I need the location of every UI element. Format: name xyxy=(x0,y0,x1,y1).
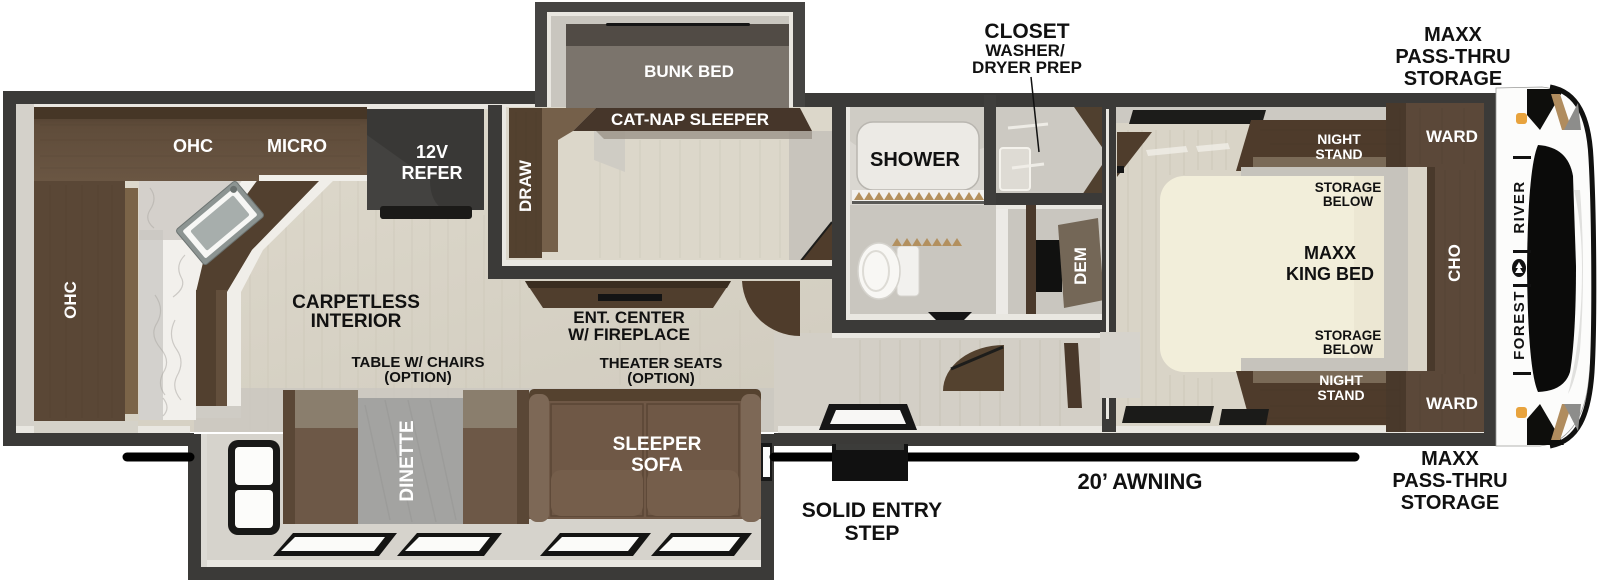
svg-text:DEM: DEM xyxy=(1071,247,1090,285)
svg-text:STORAGE: STORAGE xyxy=(1404,68,1503,90)
svg-text:MAXX: MAXX xyxy=(1424,24,1482,46)
svg-text:STORAGE: STORAGE xyxy=(1315,328,1382,343)
svg-text:WARD: WARD xyxy=(1426,127,1478,146)
svg-text:12V: 12V xyxy=(416,142,448,162)
svg-text:STAND: STAND xyxy=(1315,146,1362,162)
svg-text:PASS-THRU: PASS-THRU xyxy=(1392,470,1507,492)
svg-text:KING BED: KING BED xyxy=(1286,264,1374,284)
svg-text:STORAGE: STORAGE xyxy=(1401,492,1500,514)
svg-text:(OPTION): (OPTION) xyxy=(384,369,452,386)
svg-text:STORAGE: STORAGE xyxy=(1315,180,1382,195)
svg-text:INTERIOR: INTERIOR xyxy=(311,311,402,332)
svg-text:MICRO: MICRO xyxy=(267,136,327,156)
svg-text:NIGHT: NIGHT xyxy=(1319,372,1363,388)
svg-text:SOLID ENTRY: SOLID ENTRY xyxy=(802,499,942,522)
svg-text:20’ AWNING: 20’ AWNING xyxy=(1077,469,1202,494)
svg-text:W/ FIREPLACE: W/ FIREPLACE xyxy=(568,325,690,344)
svg-text:SOFA: SOFA xyxy=(631,455,683,476)
svg-text:CLOSET: CLOSET xyxy=(984,20,1069,43)
svg-text:OHC: OHC xyxy=(61,281,80,319)
svg-text:WARD: WARD xyxy=(1426,394,1478,413)
svg-text:MAXX: MAXX xyxy=(1304,243,1356,263)
svg-text:REFER: REFER xyxy=(401,163,462,183)
svg-text:STEP: STEP xyxy=(845,522,900,545)
svg-text:DRYER PREP: DRYER PREP xyxy=(972,58,1082,77)
svg-text:NIGHT: NIGHT xyxy=(1317,131,1361,147)
svg-text:CARPETLESS: CARPETLESS xyxy=(292,292,420,313)
svg-text:FOREST: FOREST xyxy=(1511,290,1528,360)
svg-text:PASS-THRU: PASS-THRU xyxy=(1395,46,1510,68)
svg-text:DINETTE: DINETTE xyxy=(397,420,418,501)
svg-text:STAND: STAND xyxy=(1317,387,1364,403)
svg-text:RIVER: RIVER xyxy=(1511,180,1528,233)
svg-text:CHO: CHO xyxy=(1445,244,1464,282)
svg-text:MAXX: MAXX xyxy=(1421,448,1479,470)
svg-text:OHC: OHC xyxy=(173,136,213,156)
svg-text:SHOWER: SHOWER xyxy=(870,149,961,171)
svg-text:SLEEPER: SLEEPER xyxy=(613,434,702,455)
svg-text:BELOW: BELOW xyxy=(1323,342,1374,357)
svg-text:(OPTION): (OPTION) xyxy=(627,370,695,387)
svg-text:BELOW: BELOW xyxy=(1323,194,1374,209)
svg-text:BUNK BED: BUNK BED xyxy=(644,62,734,81)
svg-text:CAT-NAP SLEEPER: CAT-NAP SLEEPER xyxy=(611,110,769,129)
